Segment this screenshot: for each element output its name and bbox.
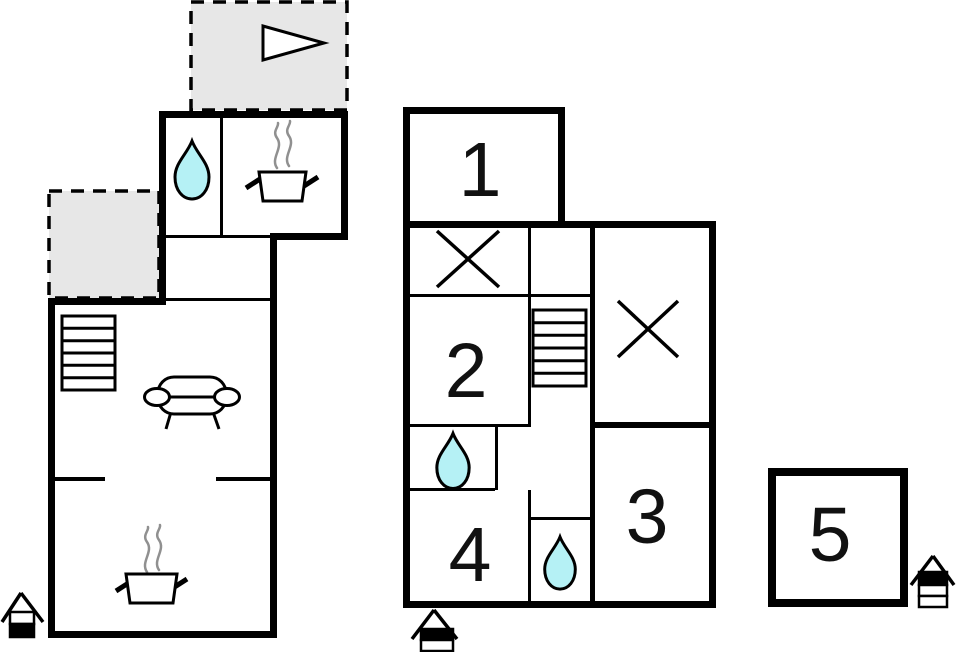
room-5-label: 5 <box>809 492 852 578</box>
steam-line <box>287 121 291 166</box>
sofa-icon <box>145 377 240 429</box>
water-drop-icon <box>545 537 576 589</box>
floor-plan-drawing: 1 2 3 4 5 <box>0 0 956 652</box>
room-1-label: 1 <box>459 127 502 213</box>
staircase-icon <box>62 316 115 390</box>
house-entrance-icon <box>412 610 457 651</box>
steam-line <box>157 525 161 570</box>
room-4-label: 4 <box>449 512 492 598</box>
water-drop-icon <box>175 141 209 199</box>
room-3-label: 3 <box>626 474 669 560</box>
cooking-pot-icon <box>116 525 187 603</box>
water-drop-icon <box>437 433 469 488</box>
steam-line <box>145 527 149 572</box>
cross-marker-icon <box>437 231 499 287</box>
staircase-icon <box>533 310 586 386</box>
steam-line <box>275 123 279 168</box>
house-entrance-icon <box>911 556 954 607</box>
cross-marker-icon <box>618 301 678 357</box>
floor-plan-page: 1 2 3 4 5 <box>0 0 956 652</box>
room-2-label: 2 <box>445 328 488 414</box>
house-entrance-icon <box>2 593 43 637</box>
cooking-pot-icon <box>246 121 318 201</box>
terrace-side <box>49 191 159 298</box>
